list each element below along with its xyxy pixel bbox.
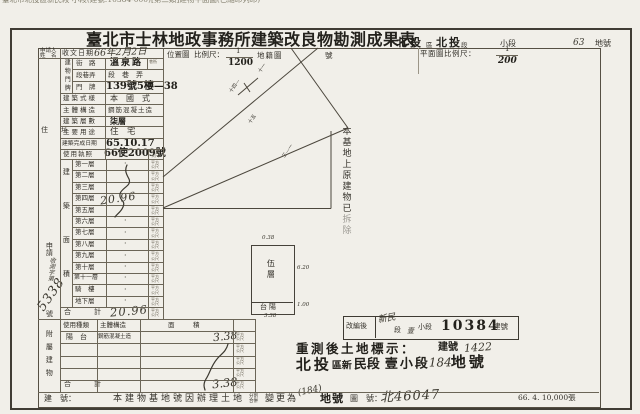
attached-row-structure: 鋼筋混凝土造 — [98, 335, 131, 341]
grid-line — [60, 380, 255, 381]
empty-mark — [124, 160, 127, 168]
segment-label: 段巷弄 — [76, 72, 96, 79]
grid-line — [60, 343, 255, 344]
structure-value: 鋼筋混凝土造 — [108, 107, 153, 114]
apply-number-suffix: 號 — [46, 311, 53, 318]
footer-note-mid: 變更為 — [265, 395, 298, 404]
grid-line — [72, 273, 163, 274]
empty-mark — [124, 286, 127, 294]
empty-mark — [124, 252, 127, 260]
grid-line — [60, 126, 163, 127]
floor-row-3: 第三層 — [75, 184, 95, 191]
door-value: 139號5樓—38 — [106, 82, 178, 93]
unit-label: 平方公尺 — [151, 264, 161, 273]
receive-date-label: 收文日期 — [62, 50, 94, 57]
attached-group-label: 附屬建物 — [45, 330, 52, 382]
unit-label: 平方公尺 — [236, 345, 246, 354]
section-name: 北投 — [436, 37, 462, 49]
resurvey-section-a: 區新 — [332, 361, 352, 372]
district-name: 北投 — [396, 37, 424, 49]
street-label: 街 路 — [76, 60, 96, 67]
unit-label: 平方公尺 — [151, 184, 161, 193]
grid-line — [72, 284, 163, 285]
grid-line — [72, 296, 163, 297]
grid-line — [60, 138, 163, 139]
grid-line — [147, 58, 148, 69]
area-group-label: 建築面積 — [62, 168, 69, 304]
floor-row-9: 第九層 — [75, 252, 95, 259]
attached-col-use: 使用種類 — [63, 322, 89, 329]
floor-row-11: 第十一層 — [74, 275, 98, 281]
floor-row-arcade: 騎 樓 — [75, 286, 95, 293]
map-number-label: 圖 號： — [350, 395, 382, 403]
resurvey-district: 北投 — [296, 358, 332, 374]
unit-label: 平方公尺 — [236, 333, 246, 342]
grid-line — [60, 48, 61, 392]
grid-line — [72, 193, 163, 194]
grid-line — [72, 58, 73, 93]
resurvey-title: 重測後土地標示： — [296, 342, 416, 355]
grid-line — [255, 319, 256, 392]
footer-note-main: 本建物基地號因辦理土地 — [113, 395, 245, 404]
reorg-label: 改編後 — [346, 323, 367, 330]
unit-label: 平方公尺 — [151, 161, 161, 170]
grid-line — [60, 368, 255, 369]
resurvey-lot-unit: 地號 — [451, 355, 487, 371]
license-label: 使用執照 — [63, 151, 93, 158]
unit-label: 平方公尺 — [151, 150, 161, 159]
unit-label: 平方公尺 — [151, 207, 161, 216]
floor-row-4: 第四層 — [75, 195, 95, 202]
site-note-vertical: 本基地上原建物已拆除 — [340, 126, 349, 236]
unit-label: 平方公尺 — [151, 229, 161, 238]
grid-line — [418, 48, 419, 74]
reorg-section-label: 段 — [394, 327, 401, 334]
grid-line — [38, 392, 599, 393]
floor-count-value: 柒層 — [110, 117, 126, 125]
footer-note-tail: 地號 — [320, 393, 344, 405]
map-number-value: 北46047 — [380, 388, 441, 405]
apply-label: 申請 — [45, 242, 52, 256]
cadastral-number-label: 號 — [325, 52, 333, 60]
floor-row-10: 第十層 — [75, 264, 95, 271]
scanned-survey-form: 臺北市北投區新民段 小段(建號:10384-000)[第二類]建物平面圖(已縮印… — [0, 0, 640, 414]
grid-line — [72, 81, 163, 82]
area-total-label: 合 計 — [64, 309, 109, 316]
unit-label: 平方公尺 — [151, 218, 161, 227]
empty-mark — [124, 263, 127, 271]
plan-dim-right: 6.20 — [297, 266, 309, 272]
empty-mark — [124, 229, 127, 237]
attached-total-label: 合 計 — [64, 381, 109, 388]
unit-label: 平方公尺 — [151, 241, 161, 250]
location-scale-denominator: 1200 — [228, 59, 253, 68]
unit-label: 平方公尺 — [151, 275, 161, 284]
segment-value: 段 巷 弄 — [108, 72, 143, 79]
print-batch: 66. 4. 10,000張 — [518, 394, 576, 402]
grid-line — [60, 93, 163, 94]
scan-top-cutoff-text: 臺北市北投區新民段 小段(建號:10384-000)[第二類]建物平面圖(已縮印… — [2, 0, 260, 6]
reorg-building-number: 10384 — [441, 319, 500, 334]
reorg-stamp-divider — [375, 316, 376, 338]
floor-row-8: 第八層 — [75, 241, 95, 248]
grid-line — [72, 170, 163, 171]
plan-dim-top: 0.38 — [262, 236, 274, 242]
location-scale-label: 比例尺： — [194, 51, 224, 59]
resurvey-section-b: 民段 — [354, 358, 380, 372]
grid-line — [60, 356, 255, 357]
grid-line — [72, 69, 163, 70]
unit-label: 平方公尺 — [151, 195, 161, 204]
street-value: 溫泉路 — [110, 59, 143, 68]
grid-line — [72, 262, 163, 263]
empty-mark — [124, 274, 127, 282]
grid-line — [60, 307, 163, 308]
floor-row-basement: 地下層 — [75, 298, 95, 305]
footer-note-split-merge: 分割 合併 — [249, 394, 258, 404]
grid-line — [163, 48, 164, 319]
grid-line — [105, 58, 106, 159]
floor-row-5: 第五層 — [75, 207, 95, 214]
area-total-value: 20.96 — [110, 303, 149, 318]
cadastral-map-label: 地籍圖 — [257, 52, 283, 60]
plan-scale-label: 平面圖比例尺： — [420, 50, 476, 58]
grid-line — [140, 319, 141, 392]
unit-label: 平方公尺 — [236, 357, 246, 366]
plan-balcony-label: 台陽 — [260, 304, 278, 311]
plan-floor-label: 伍層 — [266, 259, 274, 281]
door-group-label: 建物門牌 — [63, 59, 69, 93]
grid-line — [38, 319, 255, 320]
reorg-subsection-handwritten: 壹 — [407, 328, 414, 335]
street-extra: 巷衖 — [149, 60, 159, 64]
attached-col-area: 面 積 — [168, 322, 206, 329]
empty-mark — [124, 217, 127, 225]
grid-line — [60, 331, 255, 332]
grid-line — [72, 227, 163, 228]
reorg-number-unit: 建號 — [493, 323, 508, 331]
grid-line — [72, 250, 163, 251]
plan-scale-denominator: 200 — [498, 57, 517, 66]
unit-label: 平方公尺 — [151, 286, 161, 295]
grid-line — [60, 116, 163, 117]
floor-row-2: 第二層 — [75, 172, 95, 179]
grid-line — [60, 149, 163, 150]
resurvey-building-label: 建號 — [438, 343, 458, 354]
style-label: 建築式樣 — [63, 95, 97, 102]
footer-note-label: 建 號： — [44, 395, 76, 403]
empty-mark — [124, 240, 127, 248]
unit-label: 平方公尺 — [236, 381, 246, 390]
floor-row-6: 第六層 — [75, 218, 95, 225]
unit-label: 平方公尺 — [151, 172, 161, 181]
floor-row-7: 第七層 — [75, 229, 95, 236]
grid-line — [60, 159, 163, 160]
unit-label: 平方公尺 — [151, 298, 161, 307]
structure-label: 主體構造 — [63, 107, 97, 114]
grid-line — [60, 104, 163, 105]
grid-line — [148, 149, 149, 319]
location-scale-numerator: 1 — [236, 48, 240, 55]
plan-dim-bottom: 3.38 — [264, 314, 276, 320]
grid-line — [97, 319, 98, 392]
resurvey-lot-number: 184 — [429, 356, 452, 369]
complete-date-label: 建築完成日期 — [62, 141, 97, 147]
unit-label: 平方公尺 — [236, 369, 246, 378]
floor-row-1: 第一層 — [75, 161, 95, 168]
grid-line — [38, 58, 163, 59]
resurvey-subsection: 壹小段 — [385, 358, 430, 372]
main-use-label: 主要用途 — [63, 129, 97, 136]
grid-line — [233, 319, 234, 392]
attached-row-use: 陽 台 — [66, 334, 87, 341]
grid-line — [72, 182, 163, 183]
attached-total-value: 3.38 — [211, 376, 238, 391]
plan-dim-balcony: 1.00 — [297, 303, 309, 309]
grid-line — [72, 205, 163, 206]
grid-line — [72, 239, 163, 240]
style-value: 本 國 式 — [110, 95, 150, 103]
unit-label: 平方公尺 — [151, 252, 161, 261]
main-use-value: 住 宅 — [110, 128, 136, 137]
grid-line — [72, 216, 163, 217]
door-label: 門 牌 — [76, 84, 96, 91]
floor-count-label: 建築層數 — [63, 118, 97, 125]
reorg-subsection-label: 小段 — [418, 324, 432, 331]
attached-col-structure: 主體構造 — [100, 322, 126, 329]
plan-scale-numerator: 1 — [505, 46, 509, 53]
location-map-label: 位置圖 — [167, 51, 190, 59]
unit-label: 平方公尺 — [151, 309, 161, 318]
